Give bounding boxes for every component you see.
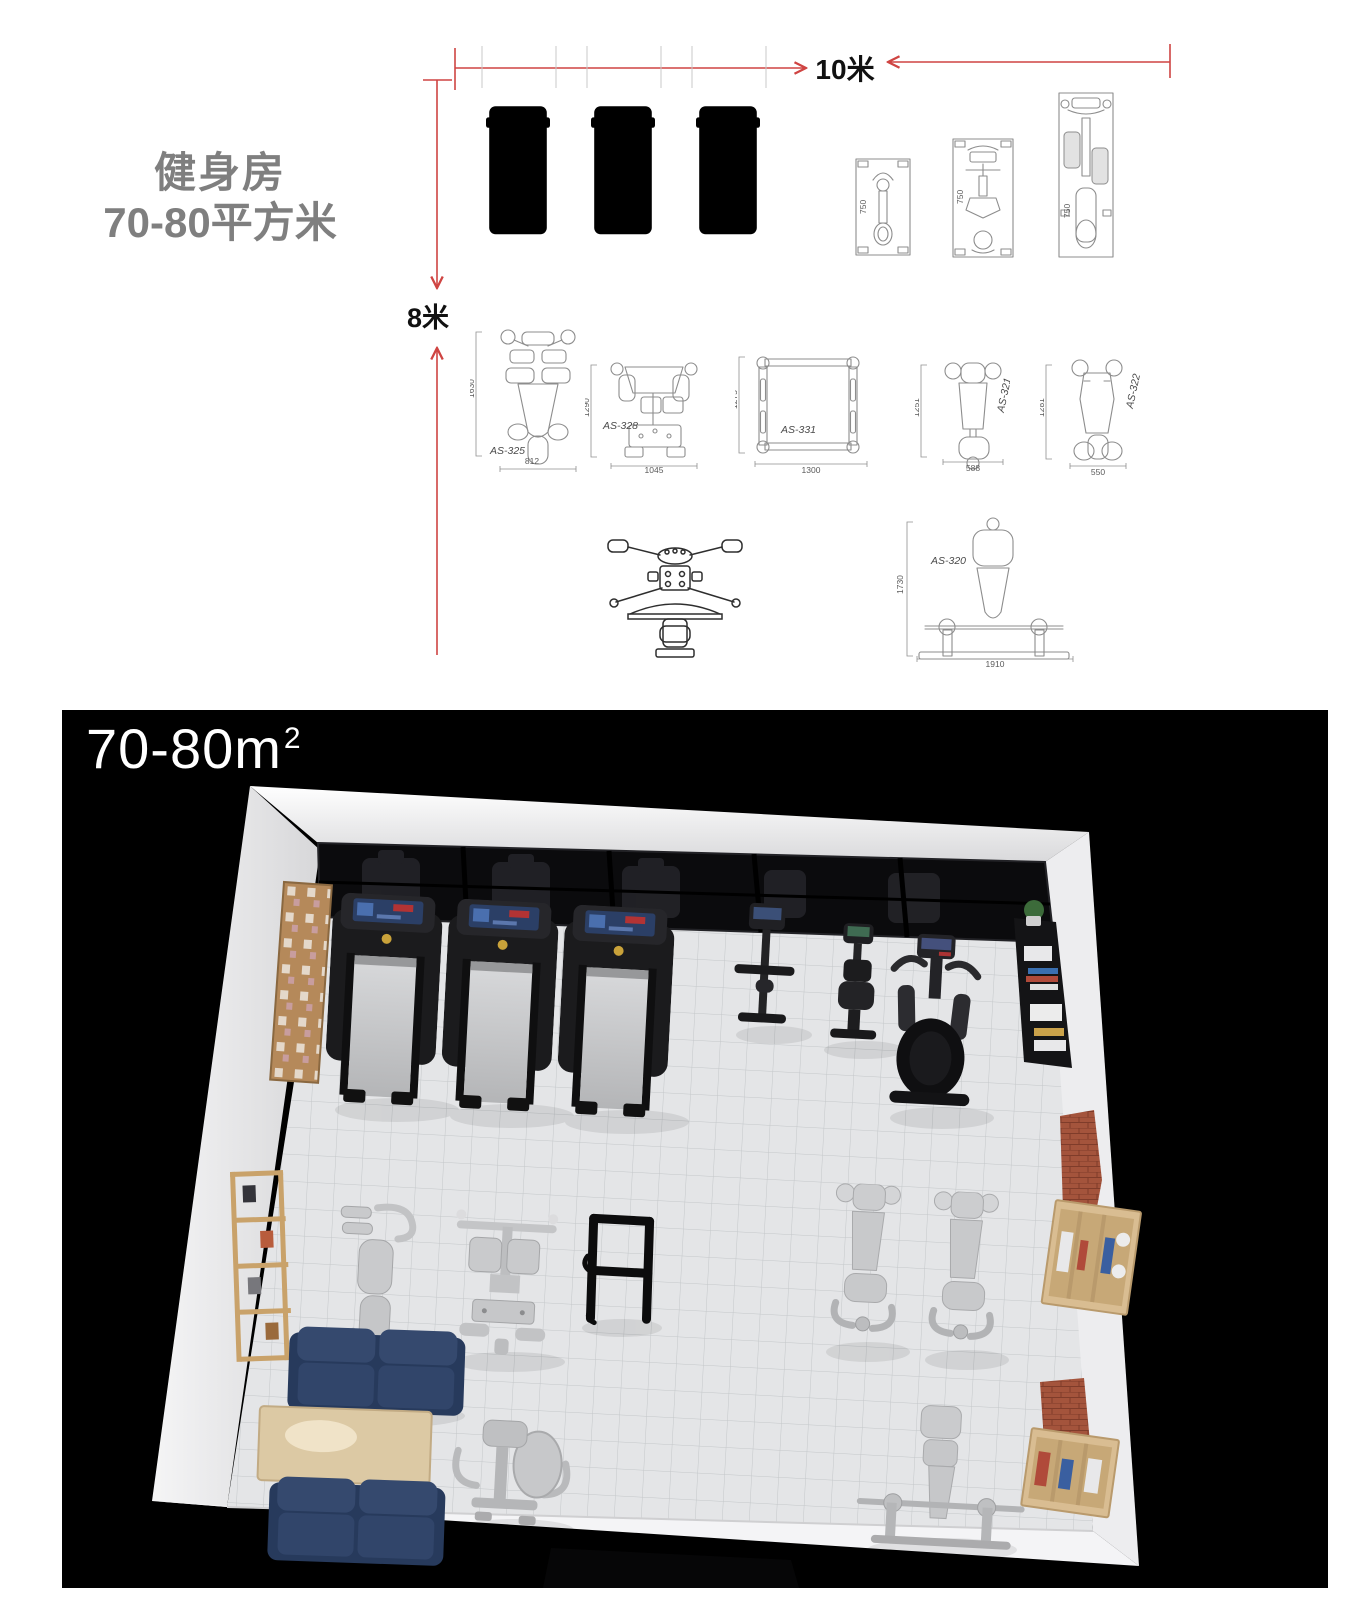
cad-machine-as325: AS-325 1630 812	[470, 320, 590, 472]
cad-elliptical: 750	[1058, 92, 1114, 258]
as331-width: 1300	[802, 465, 821, 473]
cad-machine-as321: AS-321 1251 588	[915, 355, 1010, 473]
spin-bike-depth: 750	[858, 200, 868, 214]
cad-machine-as322: AS-322 1281 550	[1040, 355, 1140, 477]
cad-treadmill-2	[583, 86, 663, 256]
plan-title-line2: 70-80平方米	[60, 198, 380, 248]
as331-model: AS-331	[780, 424, 816, 436]
cad-recumbent-bike: 750	[952, 138, 1014, 258]
gym-layout-poster: 健身房 70-80平方米 10米 8米	[0, 0, 1366, 1618]
render-panel: 70-80m2	[62, 710, 1328, 1588]
as322-width: 550	[1091, 467, 1105, 477]
wood-shelf-upper	[1042, 1200, 1142, 1315]
plan-title-line1: 健身房	[60, 148, 380, 198]
as321-model: AS-321	[995, 377, 1010, 415]
as320-width: 1910	[986, 659, 1005, 668]
plan-title: 健身房 70-80平方米	[60, 148, 380, 247]
cad-treadmill-1	[478, 86, 558, 256]
coffee-table	[257, 1406, 431, 1486]
cad-machine-as331: AS-331 1275 1300	[735, 345, 875, 473]
as320-model: AS-320	[930, 555, 966, 567]
cad-machine-as320: AS-320 1730 1910	[895, 508, 1080, 668]
cad-machine-as328: AS-328 1290 1045	[585, 355, 705, 473]
as321-height: 1251	[915, 398, 921, 417]
sofa-bottom	[267, 1476, 446, 1566]
height-dimension	[423, 80, 452, 655]
as328-width: 1045	[645, 465, 664, 473]
guide-lines	[482, 46, 766, 88]
as321-width: 588	[966, 463, 980, 473]
as322-model: AS-322	[1124, 373, 1140, 411]
as328-height: 1290	[585, 398, 591, 417]
sofa-top	[287, 1326, 466, 1416]
as325-model: AS-325	[489, 445, 525, 457]
cad-spin-bike: 750	[855, 158, 911, 256]
as328-model: AS-328	[602, 420, 638, 432]
width-dimension-label: 10米	[806, 48, 884, 88]
as320-height: 1730	[895, 575, 905, 594]
cad-treadmill-3	[688, 86, 768, 256]
recumbent-depth: 750	[955, 190, 965, 204]
height-dimension-label: 8米	[396, 296, 460, 335]
wood-shelf-lower	[1021, 1428, 1119, 1517]
cad-functional-trainer	[600, 528, 750, 660]
as331-height: 1275	[735, 390, 739, 409]
gym-room-render	[62, 710, 1328, 1588]
as322-height: 1281	[1040, 398, 1046, 417]
doorway	[543, 1548, 799, 1588]
as325-width: 812	[525, 456, 539, 466]
as325-height: 1630	[470, 379, 476, 398]
elliptical-depth: 750	[1062, 204, 1072, 218]
